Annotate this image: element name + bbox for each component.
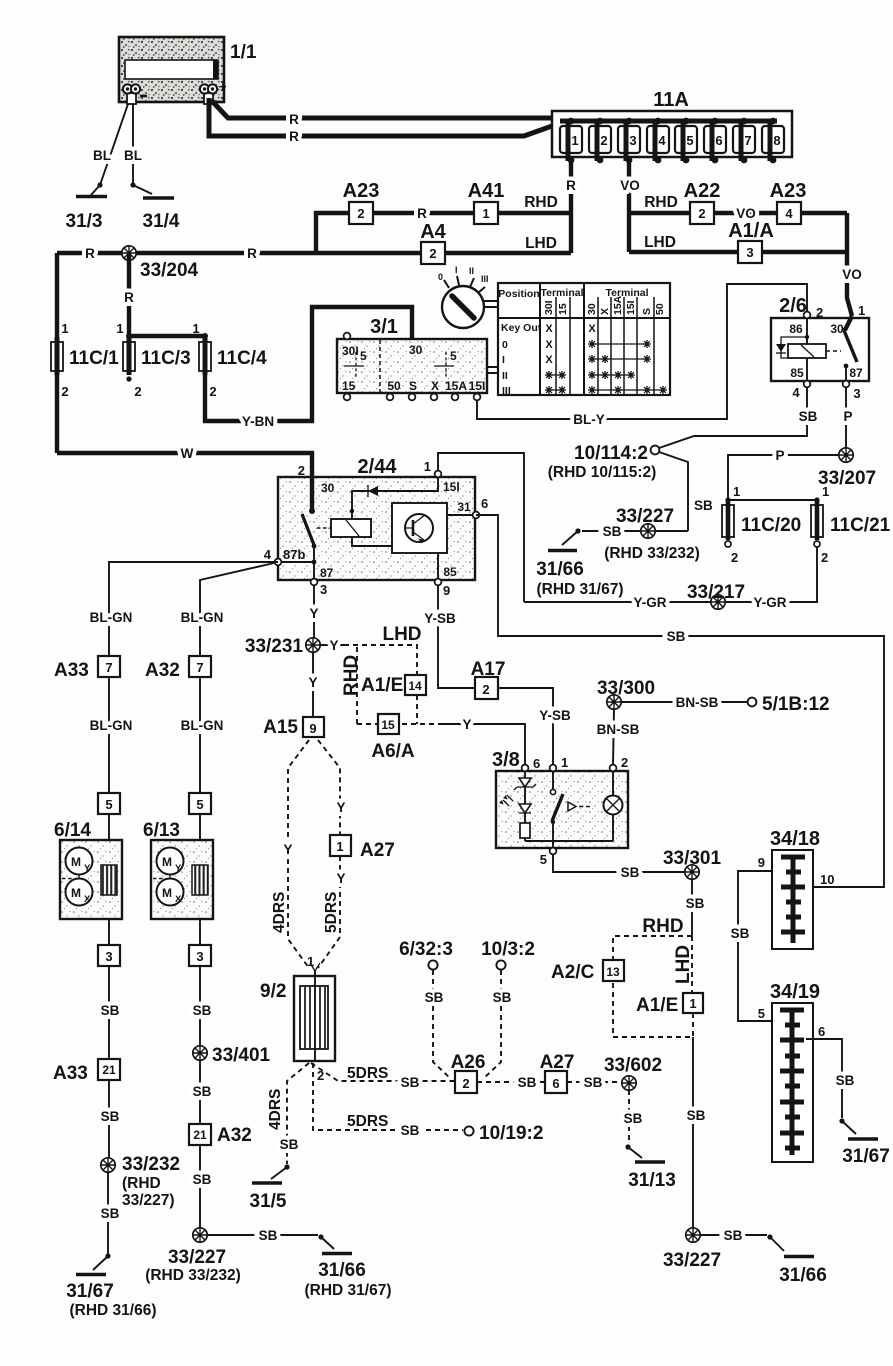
svg-text:9: 9 xyxy=(309,721,316,736)
svg-text:SB: SB xyxy=(280,1137,299,1152)
svg-text:SB: SB xyxy=(101,1206,120,1221)
svg-text:1: 1 xyxy=(116,321,123,336)
svg-text:31/66: 31/66 xyxy=(779,1265,827,1286)
svg-text:(RHD 31/66): (RHD 31/66) xyxy=(70,1302,157,1319)
svg-text:30I: 30I xyxy=(342,344,359,358)
svg-text:50: 50 xyxy=(654,303,666,315)
svg-text:1: 1 xyxy=(822,484,829,499)
svg-text:A27: A27 xyxy=(360,840,395,861)
svg-text:LHD: LHD xyxy=(525,235,557,252)
svg-text:2: 2 xyxy=(298,463,305,478)
svg-text:6: 6 xyxy=(818,1024,825,1039)
svg-text:X: X xyxy=(431,379,439,393)
svg-text:SB: SB xyxy=(621,865,640,880)
svg-text:3: 3 xyxy=(853,386,860,401)
svg-text:31/66: 31/66 xyxy=(536,559,584,580)
svg-text:A41: A41 xyxy=(468,180,505,202)
svg-text:P: P xyxy=(843,409,852,424)
svg-text:11C/20: 11C/20 xyxy=(741,515,801,536)
svg-text:1: 1 xyxy=(571,133,578,148)
svg-text:2: 2 xyxy=(821,550,828,565)
svg-text:R: R xyxy=(124,290,134,305)
svg-text:5DRS: 5DRS xyxy=(347,1065,388,1082)
svg-text:3: 3 xyxy=(105,949,112,964)
svg-text:2: 2 xyxy=(134,384,141,399)
svg-text:5: 5 xyxy=(758,1006,765,1021)
svg-text:5: 5 xyxy=(196,797,203,812)
svg-text:R: R xyxy=(289,112,299,127)
svg-text:2: 2 xyxy=(600,133,607,148)
svg-text:33/300: 33/300 xyxy=(597,678,655,699)
svg-text:SB: SB xyxy=(193,1172,212,1187)
svg-text:31/4: 31/4 xyxy=(143,211,180,232)
svg-text:10/19:2: 10/19:2 xyxy=(479,1123,543,1144)
svg-text:M: M xyxy=(71,886,81,900)
svg-text:SB: SB xyxy=(624,1111,643,1126)
svg-text:Y-SB: Y-SB xyxy=(424,611,456,626)
svg-text:II: II xyxy=(502,370,508,382)
svg-text:4: 4 xyxy=(264,547,272,562)
svg-text:5DRS: 5DRS xyxy=(323,892,340,933)
svg-text:7: 7 xyxy=(105,660,112,675)
svg-text:BL: BL xyxy=(93,148,111,163)
svg-text:31/3: 31/3 xyxy=(66,211,103,232)
svg-text:LHD: LHD xyxy=(644,234,676,251)
svg-text:8: 8 xyxy=(773,133,780,148)
svg-text:Y: Y xyxy=(309,606,318,621)
svg-text:33/301: 33/301 xyxy=(663,848,722,869)
svg-text:Y: Y xyxy=(462,717,471,732)
svg-text:Y-GR: Y-GR xyxy=(753,595,786,610)
svg-text:Y: Y xyxy=(329,638,338,653)
svg-text:2: 2 xyxy=(816,305,823,320)
svg-text:2: 2 xyxy=(357,206,364,221)
svg-text:M: M xyxy=(71,855,81,869)
svg-text:34/19: 34/19 xyxy=(770,981,820,1003)
svg-text:3: 3 xyxy=(320,582,327,597)
svg-text:R: R xyxy=(289,129,299,144)
svg-text:Y: Y xyxy=(84,863,91,874)
svg-text:P: P xyxy=(775,448,784,463)
svg-text:SB: SB xyxy=(425,990,444,1005)
svg-text:86: 86 xyxy=(789,322,803,336)
svg-text:6/32:3: 6/32:3 xyxy=(399,939,453,960)
svg-text:6/13: 6/13 xyxy=(143,820,180,841)
svg-text:50: 50 xyxy=(387,379,401,393)
svg-text:A32: A32 xyxy=(145,660,180,681)
svg-text:3: 3 xyxy=(629,133,636,148)
svg-text:31/5: 31/5 xyxy=(250,1191,287,1212)
svg-text:S: S xyxy=(641,308,653,315)
svg-text:31/13: 31/13 xyxy=(628,1170,676,1191)
svg-text:14: 14 xyxy=(408,679,422,693)
svg-text:6: 6 xyxy=(533,756,540,771)
svg-text:SB: SB xyxy=(836,1073,855,1088)
svg-text:1/1: 1/1 xyxy=(230,42,257,63)
svg-text:2: 2 xyxy=(621,755,628,770)
svg-text:A15: A15 xyxy=(263,717,298,738)
svg-text:33/227: 33/227 xyxy=(168,1247,226,1268)
svg-text:(RHD 33/232): (RHD 33/232) xyxy=(145,1267,241,1284)
svg-text:30I: 30I xyxy=(543,300,555,315)
svg-text:1: 1 xyxy=(689,996,696,1011)
svg-text:5: 5 xyxy=(360,349,367,363)
svg-text:0: 0 xyxy=(502,339,508,351)
svg-text:2: 2 xyxy=(209,384,216,399)
svg-text:11C/4: 11C/4 xyxy=(217,348,267,369)
svg-text:Key Out: Key Out xyxy=(501,322,542,334)
svg-text:SB: SB xyxy=(724,1228,743,1243)
svg-text:SB: SB xyxy=(259,1228,278,1243)
svg-text:2: 2 xyxy=(61,384,68,399)
svg-text:RHD: RHD xyxy=(524,194,558,211)
svg-text:LHD: LHD xyxy=(382,624,421,645)
svg-text:SB: SB xyxy=(686,896,705,911)
svg-text:(RHD 31/67): (RHD 31/67) xyxy=(305,1282,392,1299)
svg-text:5: 5 xyxy=(105,797,112,812)
svg-text:1: 1 xyxy=(482,206,489,221)
svg-text:RHD: RHD xyxy=(341,655,362,696)
svg-text:15I: 15I xyxy=(469,379,486,393)
svg-text:87: 87 xyxy=(849,366,863,380)
svg-text:11C/3: 11C/3 xyxy=(141,348,191,369)
svg-text:R: R xyxy=(85,246,95,261)
svg-text:15: 15 xyxy=(342,379,356,393)
svg-text:9: 9 xyxy=(443,583,450,598)
svg-text:BL: BL xyxy=(124,148,142,163)
svg-text:0: 0 xyxy=(438,272,443,282)
svg-text:III: III xyxy=(502,385,511,397)
svg-text:3: 3 xyxy=(196,949,203,964)
svg-text:Y: Y xyxy=(336,800,345,815)
svg-text:A6/A: A6/A xyxy=(371,741,415,762)
svg-text:2/6: 2/6 xyxy=(779,295,807,317)
svg-text:SB: SB xyxy=(401,1075,420,1090)
svg-text:85: 85 xyxy=(443,565,457,579)
svg-text:R: R xyxy=(417,206,427,221)
svg-text:2: 2 xyxy=(429,246,436,261)
svg-text:X: X xyxy=(588,323,596,335)
svg-text:10/114:2: 10/114:2 xyxy=(574,443,648,464)
svg-text:SB: SB xyxy=(518,1075,537,1090)
svg-text:1: 1 xyxy=(733,484,740,499)
svg-text:4: 4 xyxy=(785,206,793,221)
svg-text:Y: Y xyxy=(283,842,292,857)
svg-text:33/227): 33/227) xyxy=(122,1192,175,1209)
svg-text:Y-GR: Y-GR xyxy=(633,595,666,610)
svg-text:33/232: 33/232 xyxy=(122,1154,180,1175)
svg-text:13: 13 xyxy=(606,965,620,979)
svg-text:X: X xyxy=(84,894,91,905)
svg-text:I: I xyxy=(502,354,505,366)
svg-text:X: X xyxy=(545,339,553,351)
svg-text:5: 5 xyxy=(686,133,693,148)
svg-text:SB: SB xyxy=(694,498,713,513)
svg-text:9: 9 xyxy=(758,855,765,870)
svg-text:BL-GN: BL-GN xyxy=(90,718,133,733)
svg-text:Y: Y xyxy=(175,863,182,874)
svg-text:M: M xyxy=(162,855,172,869)
svg-text:R: R xyxy=(566,178,576,193)
svg-text:33/217: 33/217 xyxy=(687,582,745,603)
svg-text:7: 7 xyxy=(196,660,203,675)
svg-text:1: 1 xyxy=(561,755,568,770)
svg-text:A1/A: A1/A xyxy=(728,220,774,242)
svg-text:5/1B:12: 5/1B:12 xyxy=(762,694,830,715)
svg-text:31/67: 31/67 xyxy=(842,1146,890,1167)
svg-text:6/14: 6/14 xyxy=(54,820,91,841)
svg-text:11A: 11A xyxy=(653,89,689,111)
svg-text:Position: Position xyxy=(498,288,539,300)
svg-text:33/231: 33/231 xyxy=(245,636,304,657)
svg-text:SB: SB xyxy=(603,524,622,539)
svg-text:4DRS: 4DRS xyxy=(267,1089,284,1130)
svg-text:SB: SB xyxy=(687,1108,706,1123)
svg-text:31/67: 31/67 xyxy=(66,1281,114,1302)
svg-text:1: 1 xyxy=(336,839,343,854)
svg-text:1: 1 xyxy=(307,954,314,969)
svg-text:A33: A33 xyxy=(53,1063,88,1084)
svg-text:2: 2 xyxy=(698,206,705,221)
svg-text:33/602: 33/602 xyxy=(604,1055,662,1076)
svg-text:A33: A33 xyxy=(54,660,89,681)
svg-text:33/227: 33/227 xyxy=(616,506,674,527)
svg-text:A1/E: A1/E xyxy=(636,995,678,1016)
svg-text:BL-GN: BL-GN xyxy=(90,610,133,625)
svg-text:34/18: 34/18 xyxy=(770,828,820,850)
svg-text:21: 21 xyxy=(193,1128,207,1142)
svg-text:4: 4 xyxy=(658,133,666,148)
svg-text:33/204: 33/204 xyxy=(140,260,199,281)
svg-text:5DRS: 5DRS xyxy=(347,1113,388,1130)
svg-text:VO: VO xyxy=(736,206,756,221)
svg-text:BL-Y: BL-Y xyxy=(573,412,605,427)
svg-text:RHD: RHD xyxy=(642,916,683,937)
svg-text:A2/C: A2/C xyxy=(551,962,595,983)
svg-text:31/66: 31/66 xyxy=(318,1260,366,1281)
svg-text:R: R xyxy=(247,246,257,261)
svg-text:4DRS: 4DRS xyxy=(271,892,288,933)
svg-text:II: II xyxy=(469,266,474,276)
svg-text:2: 2 xyxy=(482,682,489,697)
svg-text:III: III xyxy=(481,274,489,284)
svg-text:11C/1: 11C/1 xyxy=(69,348,119,369)
svg-text:A32: A32 xyxy=(217,1125,252,1146)
svg-text:Y: Y xyxy=(308,675,317,690)
svg-text:9/2: 9/2 xyxy=(260,981,286,1002)
svg-text:85: 85 xyxy=(790,366,804,380)
svg-text:BL-GN: BL-GN xyxy=(181,610,224,625)
svg-text:87: 87 xyxy=(320,566,334,580)
svg-text:LHD: LHD xyxy=(673,945,694,984)
svg-text:31: 31 xyxy=(457,500,471,514)
svg-text:SB: SB xyxy=(493,990,512,1005)
svg-text:33/227: 33/227 xyxy=(663,1250,721,1271)
svg-text:RHD: RHD xyxy=(644,194,678,211)
svg-text:A27: A27 xyxy=(540,1052,575,1073)
svg-text:BN-SB: BN-SB xyxy=(676,695,719,710)
svg-text:30: 30 xyxy=(586,303,598,315)
svg-text:87b: 87b xyxy=(283,547,305,562)
svg-text:10/3:2: 10/3:2 xyxy=(481,939,535,960)
svg-text:3/8: 3/8 xyxy=(492,749,520,771)
svg-text:4: 4 xyxy=(792,385,800,400)
svg-text:SB: SB xyxy=(101,1003,120,1018)
svg-text:S: S xyxy=(409,379,417,393)
svg-text:6: 6 xyxy=(481,496,488,511)
svg-text:1: 1 xyxy=(424,459,431,474)
svg-text:3/1: 3/1 xyxy=(370,316,398,338)
svg-text:SB: SB xyxy=(193,1003,212,1018)
svg-text:1: 1 xyxy=(192,321,199,336)
svg-text:15: 15 xyxy=(557,303,569,315)
svg-text:A26: A26 xyxy=(451,1052,486,1073)
svg-text:SB: SB xyxy=(584,1075,603,1090)
svg-text:6: 6 xyxy=(552,1076,559,1091)
svg-text:10: 10 xyxy=(820,872,834,887)
svg-text:15: 15 xyxy=(381,718,395,732)
svg-text:SB: SB xyxy=(799,409,818,424)
svg-text:2: 2 xyxy=(731,550,738,565)
svg-text:5: 5 xyxy=(540,852,547,867)
svg-text:(RHD 31/67): (RHD 31/67) xyxy=(537,581,624,598)
svg-text:15A: 15A xyxy=(612,295,624,315)
svg-text:M: M xyxy=(162,886,172,900)
svg-text:30: 30 xyxy=(409,343,423,357)
svg-text:1: 1 xyxy=(61,321,68,336)
svg-text:BN-SB: BN-SB xyxy=(597,722,640,737)
svg-text:15I: 15I xyxy=(443,480,460,494)
svg-text:X: X xyxy=(175,894,182,905)
svg-text:A23: A23 xyxy=(770,180,807,202)
svg-text:Y-SB: Y-SB xyxy=(539,708,571,723)
svg-text:X: X xyxy=(599,308,611,315)
svg-text:7: 7 xyxy=(744,133,751,148)
svg-text:11C/21: 11C/21 xyxy=(830,515,891,536)
svg-text:X: X xyxy=(545,323,553,335)
svg-text:3: 3 xyxy=(746,245,753,260)
svg-text:I: I xyxy=(455,265,458,275)
svg-text:SB: SB xyxy=(667,629,686,644)
svg-text:+: + xyxy=(219,79,227,94)
svg-text:A23: A23 xyxy=(343,180,380,202)
svg-text:2: 2 xyxy=(462,1076,469,1091)
svg-text:6: 6 xyxy=(715,133,722,148)
svg-text:15I: 15I xyxy=(625,300,637,315)
svg-text:A4: A4 xyxy=(420,221,446,243)
svg-text:A1/E: A1/E xyxy=(361,675,403,696)
svg-text:1: 1 xyxy=(858,303,865,318)
svg-text:(RHD 33/232): (RHD 33/232) xyxy=(604,545,700,562)
svg-text:SB: SB xyxy=(101,1109,120,1124)
svg-text:Y-BN: Y-BN xyxy=(242,414,274,429)
svg-text:15A: 15A xyxy=(445,379,467,393)
svg-text:Terminal: Terminal xyxy=(541,287,584,299)
svg-text:5: 5 xyxy=(450,349,457,363)
svg-text:VO: VO xyxy=(842,267,862,282)
svg-text:(RHD: (RHD xyxy=(122,1175,161,1192)
svg-text:30: 30 xyxy=(321,481,335,495)
svg-text:SB: SB xyxy=(193,1084,212,1099)
svg-text:A22: A22 xyxy=(684,180,721,202)
svg-text:SB: SB xyxy=(731,926,750,941)
svg-text:W: W xyxy=(181,446,194,461)
svg-text:SB: SB xyxy=(401,1123,420,1138)
svg-text:(RHD 10/115:2): (RHD 10/115:2) xyxy=(548,464,657,481)
svg-text:VO: VO xyxy=(620,178,640,193)
svg-text:BL-GN: BL-GN xyxy=(181,718,224,733)
svg-text:Y: Y xyxy=(336,871,345,886)
svg-text:X: X xyxy=(545,354,553,366)
svg-text:33/401: 33/401 xyxy=(212,1045,271,1066)
svg-text:21: 21 xyxy=(102,1063,116,1077)
svg-text:2/44: 2/44 xyxy=(358,456,398,478)
